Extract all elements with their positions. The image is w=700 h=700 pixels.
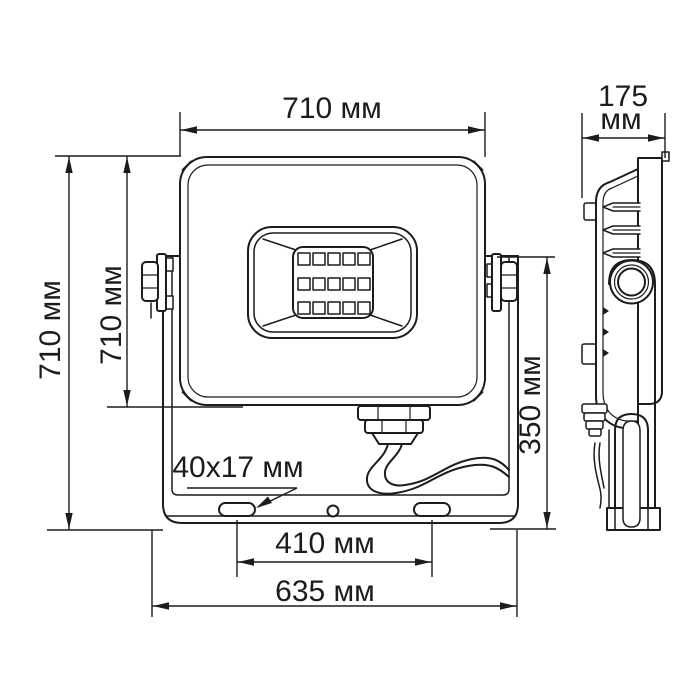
- power-cable: [367, 444, 509, 494]
- side-clip-upper: [584, 203, 596, 220]
- led-panel: [248, 227, 417, 338]
- led-chip: [343, 278, 355, 290]
- dim-slot-label: 40x17 мм: [172, 451, 303, 484]
- dim-bracket-width-label: 635 мм: [275, 575, 375, 608]
- led-chip: [343, 302, 355, 314]
- gland-ridge: [589, 429, 601, 436]
- adjustment-knob: [610, 261, 653, 304]
- bolt-washer: [492, 254, 501, 311]
- dim-width-top-label: 710 мм: [282, 92, 382, 125]
- floodlight-dimension-drawing: 710 мм 710 мм 710 мм 350 мм: [0, 0, 700, 700]
- gland-nut-top: [358, 406, 430, 420]
- dim-bracket-height-label: 350 мм: [514, 355, 547, 455]
- mounting-slot-right: [414, 503, 450, 516]
- pivot-bolt-right: [487, 254, 517, 311]
- dim-slot-spacing: 410 мм: [237, 520, 432, 577]
- cable-gland-side: [582, 404, 607, 436]
- dim-height-body-label: 710 мм: [95, 265, 128, 365]
- gland-nut-mid: [365, 420, 423, 433]
- gland-body: [372, 433, 418, 444]
- cable-edge: [385, 444, 509, 485]
- gland-ridge: [586, 421, 603, 429]
- pivot-bolt-left: [142, 254, 173, 318]
- led-chip: [358, 278, 370, 290]
- cable-edge: [599, 443, 604, 488]
- drawing-canvas: 710 мм 710 мм 710 мм 350 мм: [0, 0, 700, 700]
- led-chip: [328, 278, 340, 290]
- u-slot: [623, 421, 640, 527]
- dim-slot-callout: 40x17 мм: [172, 451, 303, 508]
- knob-center: [618, 269, 645, 296]
- power-cable-side: [594, 443, 604, 508]
- side-view: [582, 152, 669, 530]
- cable-edge: [594, 443, 601, 508]
- cable-edge: [367, 444, 509, 494]
- led-chip: [358, 253, 370, 265]
- gland-ridge: [584, 413, 605, 421]
- dim-width-top: 710 мм: [180, 92, 485, 157]
- dim-height-overall-label: 710 мм: [34, 280, 67, 380]
- bolt-head: [501, 262, 517, 301]
- dim-depth-unit: мм: [600, 103, 641, 136]
- led-chip: [298, 302, 310, 314]
- gland-ridge: [582, 404, 607, 413]
- mounting-slot-left: [219, 503, 255, 516]
- dim-slot-spacing-label: 410 мм: [275, 527, 375, 560]
- led-chip: [328, 253, 340, 265]
- led-chip: [298, 253, 310, 265]
- center-hole: [328, 506, 339, 517]
- led-chip: [343, 253, 355, 265]
- led-chip: [358, 302, 370, 314]
- led-chip: [313, 253, 325, 265]
- led-chip: [298, 278, 310, 290]
- led-chip: [328, 302, 340, 314]
- bolt-head: [142, 262, 158, 301]
- led-chip-grid: [298, 253, 370, 314]
- led-chip: [313, 278, 325, 290]
- cable-gland: [358, 406, 430, 444]
- led-chip: [313, 302, 325, 314]
- side-clip-lower: [582, 344, 596, 364]
